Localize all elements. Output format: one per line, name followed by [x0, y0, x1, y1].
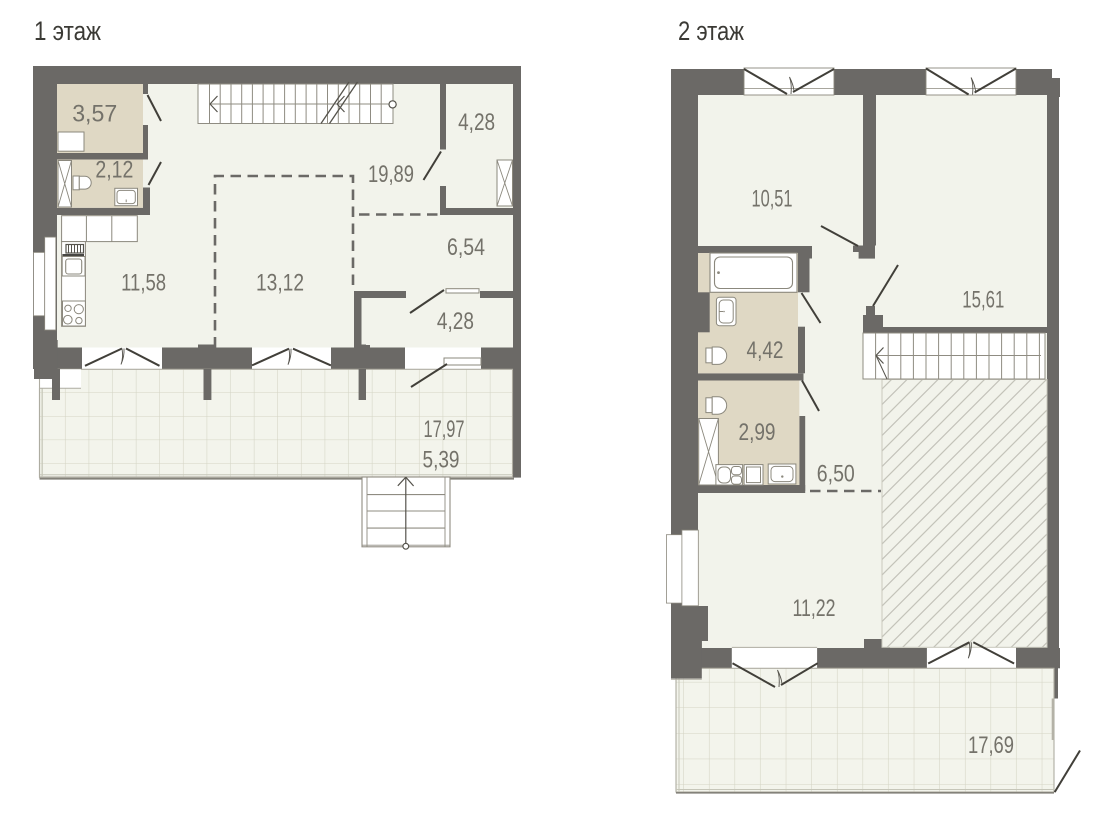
- svg-text:4,42: 4,42: [747, 337, 784, 364]
- svg-text:11,58: 11,58: [121, 270, 166, 297]
- svg-text:13,12: 13,12: [256, 270, 304, 297]
- svg-text:17,97: 17,97: [424, 416, 465, 443]
- svg-text:3,57: 3,57: [72, 101, 117, 128]
- svg-text:4,28: 4,28: [437, 308, 474, 335]
- svg-text:4,28: 4,28: [458, 109, 495, 136]
- svg-text:5,39: 5,39: [423, 447, 460, 474]
- svg-text:17,69: 17,69: [968, 732, 1014, 759]
- svg-text:10,51: 10,51: [752, 186, 793, 213]
- svg-text:2,99: 2,99: [739, 419, 776, 446]
- svg-text:2 этаж: 2 этаж: [678, 16, 744, 46]
- svg-text:6,50: 6,50: [817, 461, 855, 488]
- svg-text:6,54: 6,54: [447, 234, 485, 261]
- svg-text:2,12: 2,12: [95, 157, 133, 184]
- svg-text:19,89: 19,89: [368, 161, 414, 188]
- svg-text:15,61: 15,61: [962, 287, 1004, 314]
- svg-text:1 этаж: 1 этаж: [34, 16, 101, 46]
- svg-text:11,22: 11,22: [793, 595, 836, 622]
